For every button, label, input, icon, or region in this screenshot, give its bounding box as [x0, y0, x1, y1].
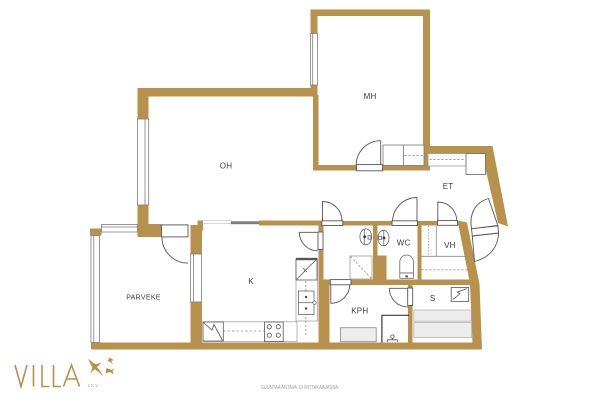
- svg-text:SUUNTAA ANTAVA, EI MITTAKAAVAS: SUUNTAA ANTAVA, EI MITTAKAAVASSA.: [261, 385, 339, 391]
- svg-text:VH: VH: [444, 241, 456, 250]
- svg-text:ET: ET: [443, 182, 454, 191]
- svg-text:MH: MH: [364, 92, 377, 101]
- svg-text:S: S: [430, 294, 436, 303]
- svg-text:WC: WC: [397, 238, 411, 247]
- svg-text:K: K: [248, 277, 254, 286]
- svg-text:OH: OH: [220, 162, 232, 171]
- svg-text:LKV: LKV: [88, 383, 100, 388]
- svg-text:KPH: KPH: [351, 306, 368, 315]
- svg-text:PARVEKE: PARVEKE: [126, 294, 161, 301]
